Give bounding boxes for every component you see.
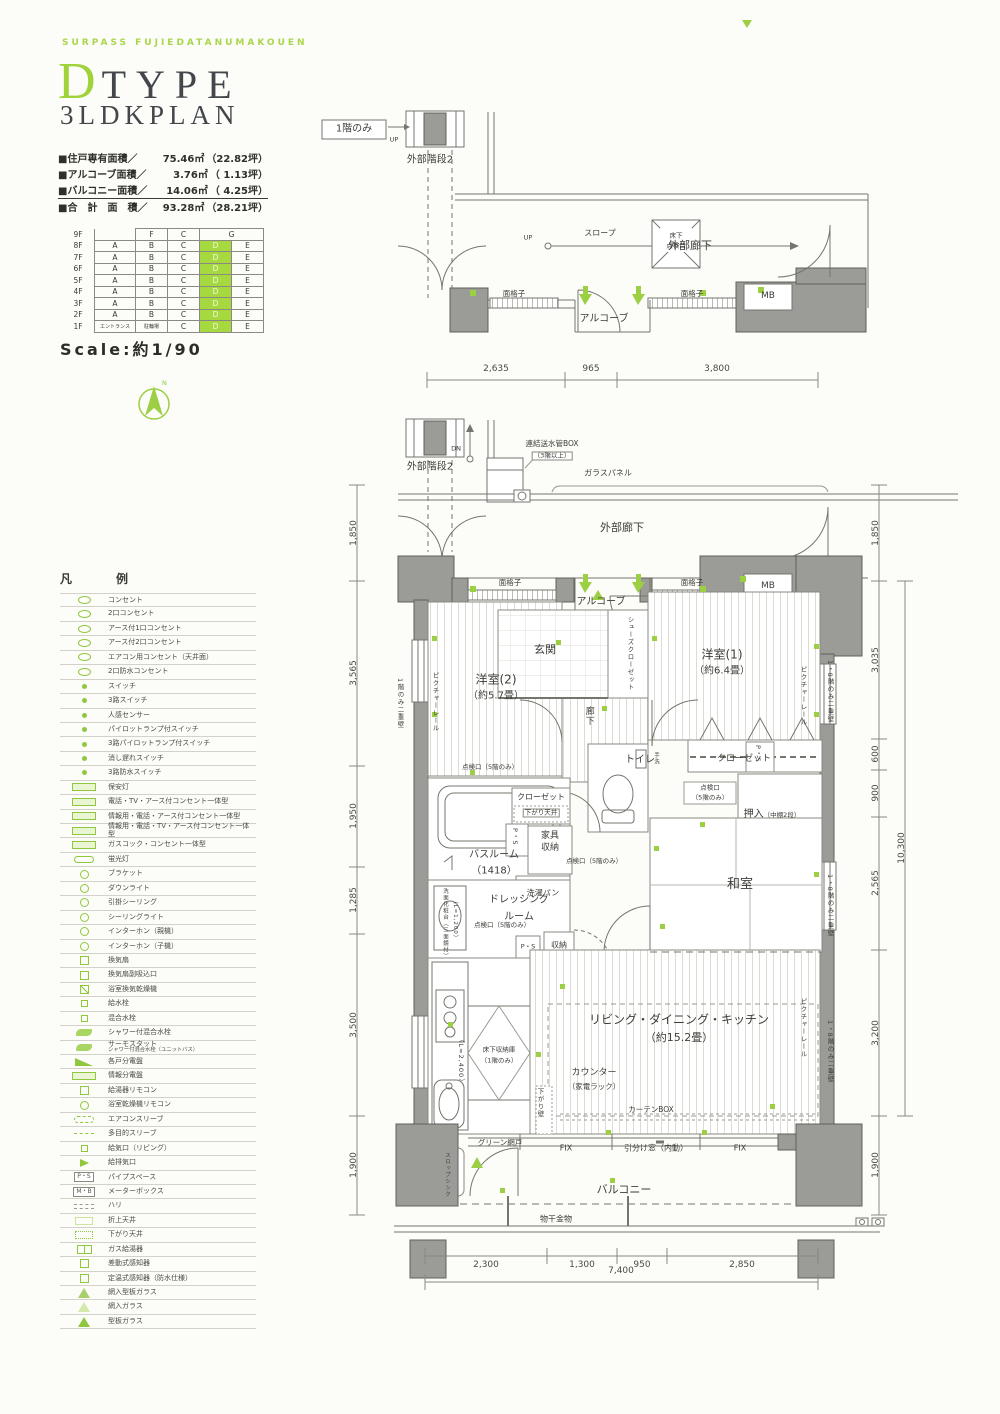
dimension-label: 3,565: [350, 660, 360, 686]
legend-item-label: 型板ガラス: [108, 1318, 143, 1325]
standpipe-label: 連結送水管BOX: [525, 440, 578, 448]
floor-tag: 1階のみ: [336, 125, 372, 136]
dimension-label: 600: [872, 745, 882, 762]
legend-item-label: サーモスタット シャワー付混合水栓（ユニットバス）: [108, 1041, 198, 1054]
tatami-room-label: 和室: [727, 878, 753, 892]
legend-item-label: インターホン（子機）: [108, 943, 178, 950]
plan-subtitle: 3LDKPLAN: [60, 100, 240, 131]
double-wall-note: 1・8階のみ二重壁: [826, 660, 833, 723]
dimension-label: 1,850: [872, 520, 882, 546]
legend-row: エアコンスリーブ: [60, 1113, 256, 1127]
legend-row: P・S パイプスペース: [60, 1171, 256, 1185]
dimension-label: 1,900: [872, 1152, 882, 1178]
double-wall-note: 1・8階のみ二重壁: [826, 874, 833, 937]
legend-symbol-icon: [76, 1044, 92, 1051]
legend-row: 3路パイロットランプ付スイッチ: [60, 737, 256, 751]
legend-symbol-icon: [80, 1259, 89, 1268]
legend-item-label: 引掛シーリング: [108, 899, 157, 906]
legend-symbol-icon: [80, 884, 89, 893]
picture-rail-label: ピクチャーレール: [431, 672, 438, 732]
legend-symbol-cell: [60, 812, 108, 820]
legend-item-label: 消し遅れスイッチ: [108, 755, 164, 762]
legend-row: 下がり天井: [60, 1228, 256, 1242]
legend-item-label: 2口コンセント: [108, 610, 154, 617]
legend-item-label: ガス給湯器: [108, 1246, 143, 1253]
legend-row: 蛍光灯: [60, 853, 256, 867]
external-stair-label: 外部階段2: [407, 156, 453, 167]
pipe-space-label: P・S: [511, 828, 518, 846]
alcove-label: アルコーブ: [576, 598, 625, 609]
storage-label: 収納: [551, 942, 567, 951]
legend-symbol-cell: [60, 1015, 108, 1022]
vanity-size: （L=1,200）: [451, 898, 457, 941]
legend-symbol-cell: [60, 1274, 108, 1283]
dimension-label: 1,900: [350, 1152, 360, 1178]
sliding-window-label: 引分け窓（内動）: [624, 1145, 688, 1154]
window-grille-label: 面格子: [681, 579, 704, 587]
legend-item-label: シャワー付混合水栓: [108, 1029, 171, 1036]
legend-symbol-icon: [74, 1204, 94, 1209]
legend-symbol-icon: M・B: [73, 1187, 94, 1197]
legend-item-label: 混合水栓: [108, 1015, 136, 1022]
legend-item-label: アース付2口コンセント: [108, 639, 182, 646]
floor-hatch-label: 床下: [670, 232, 683, 239]
closet-label: クローゼット: [717, 755, 771, 765]
ldk-label: リビング・ダイニング・キッチン: [589, 1014, 769, 1027]
legend-symbol-cell: [60, 985, 108, 994]
legend-symbol-cell: [60, 1029, 108, 1036]
legend-item-label: メーターボックス: [108, 1188, 164, 1195]
legend-symbol-cell: [60, 1116, 108, 1123]
legend-symbol-cell: [60, 756, 108, 761]
legend-symbol-cell: [60, 668, 108, 676]
legend-symbol-icon: P・S: [74, 1172, 93, 1182]
legend-symbol-icon: [80, 971, 89, 980]
legend-row: 電話・TV・アース付コンセント一体型: [60, 795, 256, 809]
table-row: 7F A B C D E: [62, 252, 264, 264]
dimension-label: 1,285: [350, 887, 360, 913]
legend-symbol-icon: [75, 1058, 93, 1066]
legend-item-label: コンセント: [108, 597, 143, 604]
legend-symbol-icon: [82, 756, 87, 761]
legend-item-label: 3路スイッチ: [108, 697, 147, 704]
legend-symbol-icon: [77, 1245, 92, 1254]
underfloor-storage-note: （1階のみ）: [481, 1057, 518, 1064]
legend-symbol-cell: [60, 1133, 108, 1134]
area-row: ■アルコーブ面積／ 3.76㎡ （ 1.13坪）: [58, 166, 268, 182]
furniture-storage-label: 収納: [541, 844, 559, 854]
legend-symbol-icon: [80, 927, 89, 936]
legend-symbol-cell: [60, 913, 108, 922]
legend-symbol-cell: [60, 1044, 108, 1051]
legend-item-label: スイッチ: [108, 683, 136, 690]
legend-symbol-cell: [60, 770, 108, 775]
legend-symbol-icon: [78, 1302, 90, 1312]
picture-rail-label: ピクチャーレール: [799, 998, 806, 1058]
legend-item-label: 情報用・電話・TV・アース付コンセント一体型: [108, 823, 256, 838]
legend-item-label: ガスコック・コンセント一体型: [108, 841, 206, 848]
legend-symbol-icon: [78, 639, 91, 647]
table-row: 8F A B C D E: [62, 240, 264, 252]
picture-rail-label: ピクチャーレール: [799, 666, 806, 726]
legend-item-label: 換気扇副吸込口: [108, 971, 157, 978]
dimension-label: 1,300: [569, 1261, 595, 1271]
legend-row: 給排気口: [60, 1156, 256, 1170]
legend-row: 3路防水スイッチ: [60, 766, 256, 780]
entrance-label: 玄関: [534, 644, 556, 656]
legend-symbol-cell: [60, 1288, 108, 1298]
legend-symbol-icon: [82, 770, 87, 775]
legend-symbol-icon: [81, 1000, 88, 1007]
inspection-hatch-note: 点検口: [700, 784, 720, 791]
balcony-label: バルコニー: [597, 1184, 652, 1196]
legend-item-label: 給気口（リビング）: [108, 1145, 171, 1152]
inspection-hatch-note: （5階のみ）: [692, 794, 729, 801]
legend-symbol-cell: [60, 727, 108, 732]
legend-symbol-cell: [60, 827, 108, 835]
legend-item-label: 2口防水コンセント: [108, 668, 168, 675]
legend-item-label: 多目的スリーブ: [108, 1130, 157, 1137]
legend-symbol-icon: [78, 610, 91, 618]
legend-row: シャワー付混合水栓: [60, 1026, 256, 1040]
legend-symbol-icon: [82, 698, 87, 703]
legend-symbol-cell: [60, 783, 108, 791]
legend-symbol-cell: [60, 856, 108, 863]
legend-symbol-icon: [80, 898, 89, 907]
legend-row: 3路スイッチ: [60, 694, 256, 708]
legend-item-label: ブラケット: [108, 870, 143, 877]
legend-symbol-cell: [60, 898, 108, 907]
legend-symbol-icon: [74, 1116, 94, 1123]
lowered-ceiling-note: 下がり天井: [523, 808, 560, 817]
window-grille-label: 面格子: [681, 290, 704, 298]
furniture-storage-label: 家具: [541, 832, 559, 842]
legend-symbol-cell: [60, 1000, 108, 1007]
legend-item-label: 保安灯: [108, 784, 129, 791]
legend-symbol-icon: [82, 684, 87, 689]
up-label: UP: [390, 136, 399, 143]
legend-list: コンセント 2口コンセント アース付1口コンセント: [60, 593, 256, 1329]
legend-symbol-icon: [80, 1101, 89, 1110]
legend-row: スイッチ: [60, 680, 256, 694]
counter-note: （家電ラック）: [568, 1083, 621, 1091]
legend-row: アース付1口コンセント: [60, 622, 256, 636]
slop-sink-label: スロップシンク: [443, 1152, 449, 1198]
legend-title: 凡 例: [60, 570, 256, 587]
legend-row: インターホン（子機）: [60, 940, 256, 954]
legend-row: 網入ガラス: [60, 1300, 256, 1314]
counter-length-note: （L=2,400）: [457, 1036, 464, 1086]
legend-symbol-icon: [72, 812, 96, 820]
legend-row: 情報分電盤: [60, 1069, 256, 1083]
legend-symbol-cell: [60, 884, 108, 893]
legend-symbol-cell: [60, 742, 108, 747]
legend-row: 換気扇副吸込口: [60, 968, 256, 982]
legend-symbol-cell: [60, 698, 108, 703]
legend-item-label: 折上天井: [108, 1217, 136, 1224]
legend-symbol-cell: [60, 870, 108, 879]
legend-item-label: 給水栓: [108, 1000, 129, 1007]
area-row: ■バルコニー面積／ 14.06㎡ （ 4.25坪）: [58, 182, 268, 198]
scale-label: Scale:約1/90: [60, 336, 203, 360]
legend-symbol-icon: [78, 625, 91, 633]
legend-item-label: 人感センサー: [108, 712, 150, 719]
double-wall-note: 1・8階のみ二重壁: [826, 1020, 833, 1083]
dimension-total-label: 7,400: [608, 1267, 634, 1277]
floor-position-table: 9F F C G 8F A B C D E 7F A B C D E 6F A …: [62, 228, 264, 333]
dimension-label: 2,850: [729, 1261, 755, 1271]
north-label: N: [162, 380, 167, 387]
dimension-label: 1,850: [350, 520, 360, 546]
legend-item-label: 下がり天井: [108, 1231, 143, 1238]
legend-symbol-icon: [72, 827, 96, 835]
legend-symbol-icon: [80, 1086, 89, 1095]
legend-symbol-icon: [76, 1029, 92, 1036]
legend-row: パイロットランプ付スイッチ: [60, 723, 256, 737]
table-row: 2F A B C D E: [62, 309, 264, 321]
legend-symbol-icon: [74, 856, 94, 863]
legend-row: サーモスタット シャワー付混合水栓（ユニットバス）: [60, 1041, 256, 1055]
legend-item-label: 各戸分電盤: [108, 1058, 143, 1065]
legend-symbol-icon: [80, 913, 89, 922]
legend-symbol-cell: [60, 1204, 108, 1209]
legend-symbol-icon: [82, 713, 87, 718]
legend-symbol-cell: [60, 956, 108, 965]
legend-row: 引掛シーリング: [60, 896, 256, 910]
legend-symbol-cell: [60, 1259, 108, 1268]
table-row: 4F A B C D E: [62, 286, 264, 298]
green-screen-door-label: グリーン網戸: [478, 1139, 523, 1147]
legend-symbol-icon: [82, 727, 87, 732]
legend-row: ハリ: [60, 1199, 256, 1213]
legend-row: 給気口（リビング）: [60, 1142, 256, 1156]
legend-symbol-cell: [60, 1086, 108, 1095]
area-row: ■住戸専有面積／ 75.46㎡ （22.82坪）: [58, 150, 268, 166]
legend-symbol-cell: [60, 1101, 108, 1110]
room-label-west1: 洋室(1): [702, 649, 743, 662]
legend-row: 換気扇: [60, 954, 256, 968]
legend-item-label: 網入型板ガラス: [108, 1289, 157, 1296]
legend-symbol-icon: [75, 1217, 93, 1225]
brand-name: SURPASS FUJIEDATANUMAKOUEN: [62, 38, 308, 48]
legend-symbol-cell: [60, 1302, 108, 1312]
legend-row: 型板ガラス: [60, 1315, 256, 1329]
legend-symbol-cell: [60, 841, 108, 849]
legend-symbol-cell: [60, 927, 108, 936]
legend-symbol-cell: [60, 1145, 108, 1152]
legend-item-label: 給排気口: [108, 1159, 136, 1166]
vanity-label: 洗面化粧台（三面鏡付）: [441, 888, 447, 960]
double-wall-note: 1階のみ二重壁: [396, 678, 403, 728]
legend-symbol-icon: [80, 1274, 89, 1283]
table-row: 9F F C G: [62, 229, 264, 241]
legend-symbol-cell: M・B: [60, 1187, 108, 1197]
legend-symbol-cell: [60, 1231, 108, 1239]
legend-row: 定温式感知器（防水仕様）: [60, 1272, 256, 1286]
table-row: 3F A B C D E: [62, 298, 264, 310]
area-row-total: ■合 計 面 積／ 93.28㎡ （28.21坪）: [58, 198, 268, 215]
legend-item-label: 情報用・電話・アース付コンセント一体型: [108, 813, 240, 820]
dimension-label: 2,635: [483, 365, 509, 375]
down-label: DN: [451, 445, 461, 452]
legend-row: 情報用・電話・TV・アース付コンセント一体型: [60, 824, 256, 838]
legend-symbol-icon: [72, 1072, 96, 1080]
legend-symbol-icon: [80, 1159, 89, 1167]
fix-window-label: FIX: [734, 1145, 746, 1154]
legend-row: ダウンライト: [60, 882, 256, 896]
legend-symbol-icon: [78, 1317, 90, 1327]
legend-row: 各戸分電盤: [60, 1055, 256, 1069]
legend-symbol-cell: [60, 610, 108, 618]
legend-row: 混合水栓: [60, 1012, 256, 1026]
area-summary: ■住戸専有面積／ 75.46㎡ （22.82坪） ■アルコーブ面積／ 3.76㎡…: [58, 150, 268, 215]
legend-symbol-icon: [78, 1288, 90, 1298]
alcove-label: アルコーブ: [579, 315, 628, 326]
legend-symbol-cell: [60, 971, 108, 980]
legend-row: M・B メーターボックス: [60, 1185, 256, 1199]
north-compass-icon: [130, 378, 180, 428]
legend-row: 多目的スリーブ: [60, 1127, 256, 1141]
legend-item-label: 蛍光灯: [108, 856, 129, 863]
legend-item-label: ハリ: [108, 1202, 122, 1209]
inspection-hatch-note: 点検口（5階のみ）: [566, 858, 622, 865]
legend-row: 浴室乾燥機リモコン: [60, 1098, 256, 1112]
legend-symbol-icon: [80, 956, 89, 965]
legend: 凡 例 コンセント 2口コンセント: [60, 570, 256, 1329]
legend-symbol-cell: [60, 684, 108, 689]
toilet-label: トイレ: [625, 756, 655, 767]
dimension-total-label: 10,300: [898, 832, 908, 864]
dressing-room-label: ドレッシング: [489, 896, 549, 907]
inspection-hatch-note: 点検口（5階のみ）: [462, 764, 518, 771]
closet-label: クローゼット: [517, 794, 565, 803]
shoes-closet-label: シューズクローゼット: [626, 616, 633, 691]
hallway-label: 廊下: [583, 706, 593, 726]
legend-symbol-icon: [81, 1015, 88, 1022]
dimension-label: 1,950: [350, 803, 360, 829]
inspection-hatch-note: 点検口（5階のみ）: [474, 922, 530, 929]
legend-item-label: エアコンスリーブ: [108, 1116, 163, 1123]
legend-item-label: 情報分電盤: [108, 1072, 143, 1079]
dimension-label: 965: [582, 365, 599, 375]
external-corridor-label: 外部廊下: [600, 522, 644, 534]
legend-row: 網入型板ガラス: [60, 1286, 256, 1300]
hand-wash-label: 手洗: [652, 752, 658, 765]
glass-panel-label: ガラスパネル: [584, 470, 632, 479]
legend-symbol-icon: [78, 653, 91, 661]
external-stair-label: 外部階段2: [407, 463, 453, 474]
dimension-label: 3,035: [872, 647, 882, 673]
dimension-label: 950: [633, 1261, 650, 1271]
legend-symbol-cell: [60, 1159, 108, 1167]
legend-symbol-icon: [75, 1231, 93, 1239]
legend-symbol-cell: [60, 1217, 108, 1225]
legend-item-label: 換気扇: [108, 957, 129, 964]
room-size-west2: （約5.7畳）: [468, 692, 524, 703]
legend-row: 保安灯: [60, 781, 256, 795]
legend-symbol-cell: [60, 713, 108, 718]
up-label: UP: [524, 234, 533, 241]
legend-item-label: 3路パイロットランプ付スイッチ: [108, 740, 210, 747]
legend-row: シーリングライト: [60, 911, 256, 925]
floor-hatch-label: 点検口: [666, 242, 686, 249]
oshiire-label: 押入（中棚2段）: [744, 803, 801, 821]
dimension-label: 2,565: [872, 870, 882, 896]
legend-row: アース付2口コンセント: [60, 636, 256, 650]
table-row: 1F エントランス 駐輪場 C D E: [62, 321, 264, 333]
legend-symbol-icon: [78, 596, 91, 604]
legend-item-label: 電話・TV・アース付コンセント一体型: [108, 798, 228, 805]
legend-row: 給水栓: [60, 997, 256, 1011]
legend-row: 2口防水コンセント: [60, 665, 256, 679]
legend-symbol-icon: [72, 841, 96, 849]
legend-item-label: インターホン（親機）: [108, 928, 178, 935]
bathroom-label: バスルーム: [469, 851, 519, 862]
legend-row: ガスコック・コンセント一体型: [60, 838, 256, 852]
room-label-west2: 洋室(2): [476, 674, 517, 687]
slope-label: スロープ: [584, 230, 616, 239]
dimension-label: 3,800: [704, 365, 730, 375]
legend-row: ガス給湯器: [60, 1243, 256, 1257]
legend-symbol-icon: [82, 742, 87, 747]
legend-symbol-cell: [60, 798, 108, 806]
legend-row: 人感センサー: [60, 709, 256, 723]
legend-item-label: 浴室乾燥機リモコン: [108, 1101, 171, 1108]
fix-window-label: FIX: [560, 1145, 572, 1154]
dimension-label: 900: [872, 784, 882, 801]
legend-item-label: 3路防水スイッチ: [108, 769, 161, 776]
legend-row: 給湯器リモコン: [60, 1084, 256, 1098]
window-grille-label: 面格子: [499, 579, 522, 587]
legend-symbol-icon: [81, 1145, 88, 1152]
legend-row: 2口コンセント: [60, 607, 256, 621]
pipe-space-label: P・S: [521, 943, 536, 950]
meter-box-label: MB: [761, 582, 775, 592]
legend-symbol-cell: P・S: [60, 1172, 108, 1182]
meter-box-label: MB: [761, 292, 775, 302]
legend-symbol-cell: [60, 1058, 108, 1066]
standpipe-note: （3階以上）: [532, 451, 573, 460]
legend-symbol-icon: [74, 1133, 94, 1134]
dimension-label: 3,200: [872, 1020, 882, 1046]
ldk-size: （約15.2畳）: [645, 1032, 714, 1044]
table-row: 5F A B C D E: [62, 275, 264, 287]
legend-row: 差動式感知器: [60, 1257, 256, 1271]
legend-symbol-icon: [78, 668, 91, 676]
legend-item-label: シーリングライト: [108, 914, 164, 921]
legend-symbol-cell: [60, 653, 108, 661]
dimension-label: 3,500: [350, 1012, 360, 1038]
table-row: 6F A B C D E: [62, 263, 264, 275]
window-grille-label: 面格子: [503, 290, 526, 298]
legend-symbol-icon: [80, 942, 89, 951]
legend-row: 折上天井: [60, 1214, 256, 1228]
legend-symbol-cell: [60, 625, 108, 633]
legend-row: コンセント: [60, 593, 256, 607]
legend-item-label: アース付1口コンセント: [108, 625, 182, 632]
legend-symbol-icon: [80, 985, 89, 994]
legend-row: ブラケット: [60, 867, 256, 881]
legend-symbol-cell: [60, 1245, 108, 1254]
room-size-west1: （約6.4畳）: [694, 667, 750, 678]
dimension-label: 2,300: [473, 1261, 499, 1271]
legend-symbol-cell: [60, 942, 108, 951]
legend-item-label: パイプスペース: [108, 1174, 156, 1181]
legend-item-label: 定温式感知器（防水仕様）: [108, 1275, 192, 1282]
legend-item-label: 給湯器リモコン: [108, 1087, 157, 1094]
legend-symbol-icon: [72, 783, 96, 791]
legend-symbol-cell: [60, 1072, 108, 1080]
